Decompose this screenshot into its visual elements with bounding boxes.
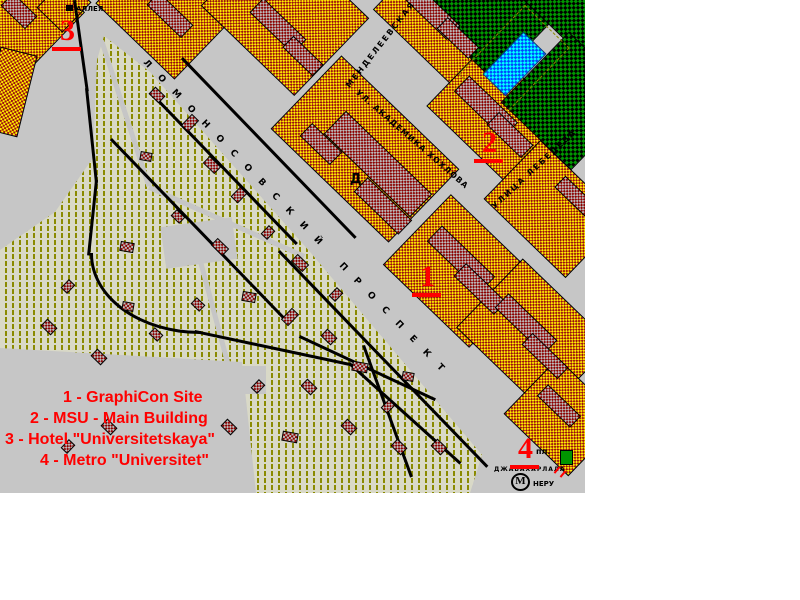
legend-item-2: 2 - MSU - Main Building: [30, 410, 208, 428]
map-canvas[interactable]: ЛОМОНОСОВСКИЙ ПРОСПЕКТ МЕНДЕЛЕЕВСКАЯ УЛ.…: [0, 0, 585, 493]
marker-1[interactable]: 1: [412, 262, 441, 297]
marker-3[interactable]: 3: [52, 16, 81, 51]
legend-item-3: 3 - Hotel "Universitetskaya": [5, 431, 215, 449]
marker-4[interactable]: 4: [510, 434, 539, 469]
square-label-name2: НЕРУ: [533, 480, 554, 488]
legend-item-1: 1 - GraphiCon Site: [63, 389, 203, 407]
building-symbol-icon: Д: [350, 172, 362, 187]
marker-2[interactable]: 2: [474, 128, 503, 163]
tree-symbol: [560, 450, 573, 465]
legend-item-4: 4 - Metro "Universitet": [40, 452, 209, 470]
depot-building: [401, 371, 414, 382]
street-label-alleya: АЛЛЕЯ: [76, 5, 103, 13]
depot-building: [139, 151, 152, 162]
screenshot-canvas: ЛОМОНОСОВСКИЙ ПРОСПЕКТ МЕНДЕЛЕЕВСКАЯ УЛ.…: [0, 0, 800, 600]
city-block: [0, 47, 38, 138]
metro-icon[interactable]: М: [511, 473, 530, 491]
depot-building: [121, 301, 134, 312]
flag-icon: [66, 5, 73, 11]
